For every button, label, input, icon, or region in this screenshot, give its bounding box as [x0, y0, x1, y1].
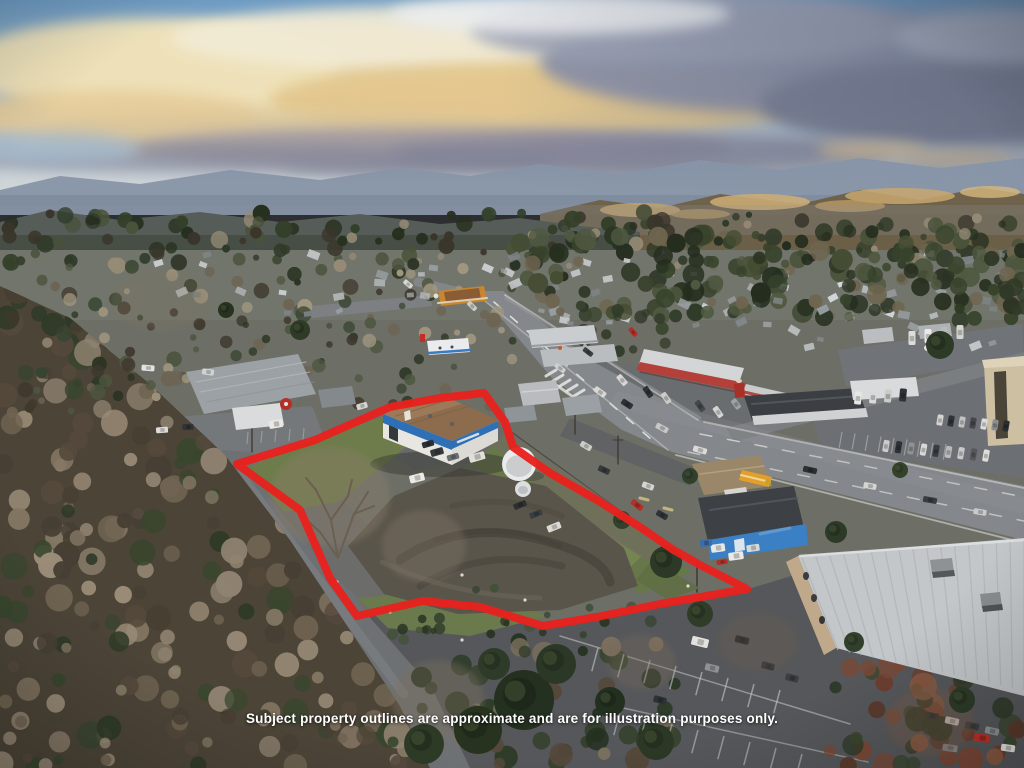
aerial-scene — [0, 0, 1024, 768]
aerial-property-photo: Subject property outlines are approximat… — [0, 0, 1024, 768]
disclaimer-text: Subject property outlines are approximat… — [0, 711, 1024, 726]
vignette — [0, 0, 1024, 768]
